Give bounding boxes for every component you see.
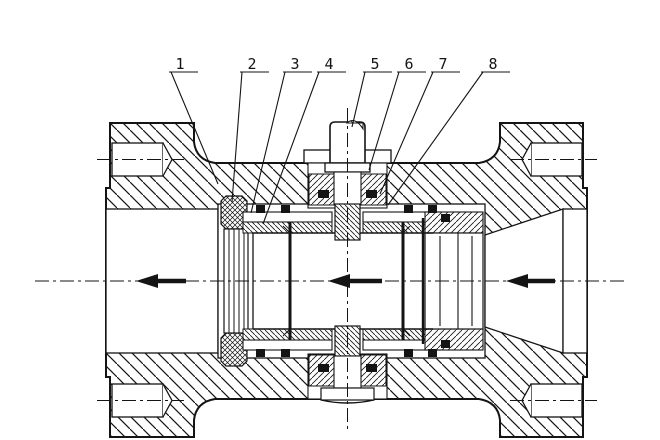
seal	[428, 205, 437, 213]
carrier-plate-left	[243, 212, 332, 222]
seal	[404, 205, 413, 213]
callout-label-8: 8	[488, 55, 497, 73]
retainer-hatch-bottom	[425, 329, 483, 350]
callout-label-7: 7	[438, 55, 447, 73]
seal	[428, 349, 437, 357]
seal	[366, 364, 377, 372]
seal	[281, 349, 290, 357]
callout-label-2: 2	[247, 55, 256, 73]
packing-gland-left	[309, 174, 334, 205]
seal	[441, 214, 450, 222]
seal	[318, 190, 329, 198]
callout-labels: 1 2 3 4 5 6 7 8	[175, 55, 497, 73]
seal	[318, 364, 329, 372]
callout-label-3: 3	[290, 55, 299, 73]
retainer-hatch-top	[425, 212, 483, 233]
carrier-plate-left-b	[243, 340, 332, 350]
seal	[256, 349, 265, 357]
callout-label-1: 1	[175, 55, 184, 73]
seal	[366, 190, 377, 198]
seal	[256, 205, 265, 213]
carrier-sleeve-left	[243, 222, 332, 233]
callout-5	[352, 72, 392, 127]
engineering-drawing-canvas: 1 2 3 4 5 6 7 8	[0, 0, 660, 440]
ball-valve-section-drawing: 1 2 3 4 5 6 7 8	[0, 0, 660, 440]
seal	[281, 205, 290, 213]
callout-label-5: 5	[370, 55, 379, 73]
seal	[404, 349, 413, 357]
seal	[441, 340, 450, 348]
carrier-sleeve-left-b	[243, 329, 332, 340]
callout-label-6: 6	[404, 55, 413, 73]
callout-label-4: 4	[324, 55, 333, 73]
